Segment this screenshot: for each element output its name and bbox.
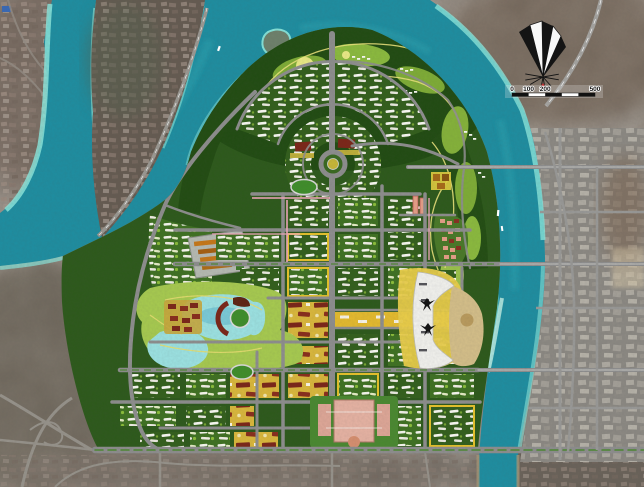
master-plan-screenshot: 0 100 200 500 (0, 0, 644, 487)
scale-tick-100: 100 (523, 86, 534, 93)
scale-tick-200: 200 (540, 86, 551, 93)
scale-tick-0: 0 (510, 86, 514, 93)
scale-segment (578, 93, 595, 96)
scale-segment (545, 93, 562, 96)
scale-tick-500: 500 (590, 86, 601, 93)
film-grain (0, 0, 644, 487)
scale-bar: 0 100 200 500 (505, 85, 603, 98)
scale-segment (512, 93, 529, 96)
master-plan-map: 0 100 200 500 (0, 0, 644, 487)
